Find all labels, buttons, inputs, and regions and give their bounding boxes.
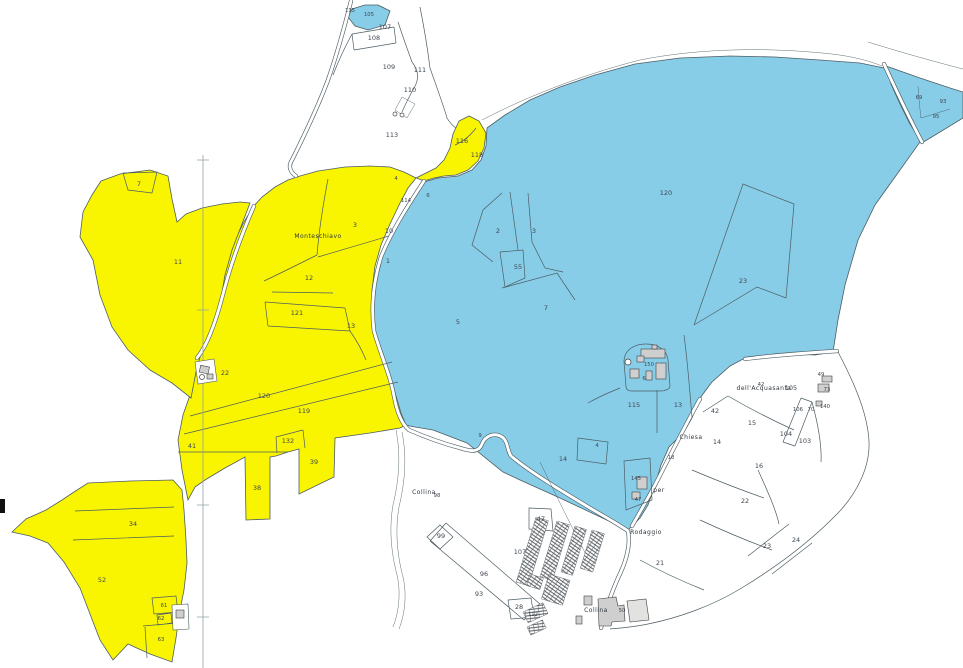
parcel-label: 112 <box>528 612 538 618</box>
parcel-label: 7 <box>137 180 141 188</box>
place-label: Rodaggio <box>630 529 662 536</box>
parcel-label: 42 <box>711 407 719 415</box>
place-label: Collina <box>584 607 608 614</box>
place-label: Monteschiavo <box>294 233 341 240</box>
parcel-label: 114 <box>401 198 412 204</box>
parcel-label: 11 <box>174 258 182 266</box>
cadastral-map-stage: 1151051071081091111101137111212113310146… <box>0 0 963 668</box>
place-label: dell'Acquasanta <box>737 385 792 392</box>
parcel-label: 96 <box>480 570 488 578</box>
parcel-label: 107 <box>379 23 391 31</box>
parcel-label: 115 <box>345 8 355 14</box>
parcel-label: 99 <box>437 532 445 540</box>
survey-marker-icon <box>393 112 397 116</box>
parcel-label: 150 <box>644 362 655 368</box>
parcel-label: 14 <box>559 455 567 463</box>
well-ring-icon <box>625 359 631 365</box>
parcel-label: 22 <box>221 369 229 377</box>
parcel-label: 105 <box>364 12 374 18</box>
survey-marker-icon <box>400 113 404 117</box>
parcel-label: 69 <box>916 95 923 101</box>
parcel-label: 52 <box>98 576 106 584</box>
parcel-label: 9 <box>478 433 481 439</box>
parcel-label: 115 <box>628 401 640 409</box>
parcel-label: 5 <box>456 318 460 326</box>
parcel-label: 14 <box>713 438 721 446</box>
parcel-label: 15 <box>748 419 756 427</box>
parcel-label: 13 <box>674 401 682 409</box>
parcel-label: 61 <box>161 603 168 609</box>
parcel-label: 116 <box>456 137 468 145</box>
place-label: Collina <box>412 489 436 496</box>
place-label: Chiesa <box>679 434 702 441</box>
parcel-label: 47 <box>537 515 545 523</box>
parcel-label: 13 <box>347 322 355 330</box>
parcel-label: 16 <box>755 462 763 470</box>
parcel-label: 140 <box>820 404 831 410</box>
parcel-label: 93 <box>475 590 483 598</box>
parcel-label: 55 <box>514 263 522 271</box>
parcel-label: 24 <box>792 536 800 544</box>
parcel-label: 132 <box>282 437 294 445</box>
parcel-label: 145 <box>631 476 641 482</box>
parcel-label: 113 <box>386 131 398 139</box>
parcel-label: 108 <box>368 34 380 42</box>
place-label: per <box>653 487 664 494</box>
parcel-label: 10 <box>385 227 393 235</box>
parcel-label: 49 <box>818 372 825 378</box>
parcel-label: 111 <box>414 66 426 74</box>
cadastral-map[interactable]: 1151051071081091111101137111212113310146… <box>0 0 963 668</box>
parcel-label: 12 <box>305 274 313 282</box>
parcel-label: 121 <box>291 309 303 317</box>
parcel-label: 23 <box>763 542 771 550</box>
parcel-label: 106 <box>793 407 804 413</box>
parcel-label: 120 <box>258 392 270 400</box>
parcel-label: 95 <box>933 114 940 120</box>
parcel-label: 38 <box>253 484 261 492</box>
parcel-label: 28 <box>515 603 523 611</box>
parcel-label: 120 <box>660 189 672 197</box>
parcel-label: 109 <box>383 63 395 71</box>
parcel-label: 119 <box>298 407 310 415</box>
parcel-label: 34 <box>129 520 137 528</box>
well-ring-icon <box>200 375 205 380</box>
parcel-label: 107 <box>514 548 526 556</box>
parcel-label: 41 <box>188 442 196 450</box>
parcel-label: 2 <box>496 227 500 235</box>
parcel-label: 47 <box>635 497 642 503</box>
parcel-label: 73 <box>824 387 831 393</box>
parcel-label: 39 <box>310 458 318 466</box>
parcel-label: 62 <box>158 616 165 622</box>
parcel-label: 63 <box>158 637 165 643</box>
parcel-label: 21 <box>656 559 664 567</box>
parcel-label: 23 <box>739 277 747 285</box>
parcel-label: 1 <box>386 257 390 265</box>
parcel-label: 103 <box>799 437 811 445</box>
parcel-label: 3 <box>353 221 357 229</box>
parcel-label: 104 <box>780 430 792 438</box>
parcel-label: 93 <box>940 99 947 105</box>
parcel-label: 7 <box>544 304 548 312</box>
edge-mark <box>0 499 5 513</box>
parcel-label: 70 <box>808 407 815 413</box>
parcel-label: 110 <box>404 86 416 94</box>
parcel-label: 18 <box>668 455 675 461</box>
parcel-label: 3 <box>532 227 536 235</box>
parcel-label: 50 <box>619 608 626 614</box>
parcel-label: 118 <box>471 151 483 159</box>
parcel-label: 22 <box>741 497 749 505</box>
